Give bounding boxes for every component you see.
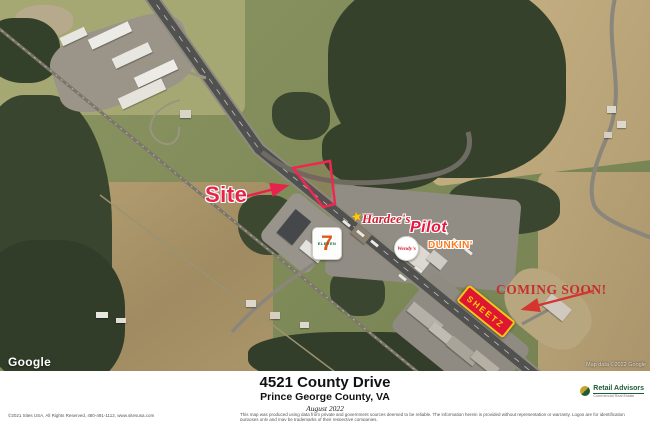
page-subtitle: Prince George County, VA bbox=[0, 391, 650, 403]
retail-advisors-logo: Retail Advisors Commercial Real Estate bbox=[580, 385, 644, 398]
disclaimer-text: This map was produced using data from pr… bbox=[240, 413, 630, 421]
flyer-page: 7 ELEVEN ★ Hardee's Pilot Wendy's DUNKIN… bbox=[0, 0, 650, 421]
annotation-layer bbox=[0, 0, 650, 371]
map-data-attribution: Map data ©2022 Google bbox=[586, 362, 646, 368]
site-arrow bbox=[247, 186, 286, 196]
brand-tagline: Commercial Real Estate bbox=[593, 394, 644, 398]
coming-soon-arrow bbox=[524, 291, 593, 309]
google-logo: Google bbox=[8, 355, 51, 369]
page-title: 4521 County Drive bbox=[0, 374, 650, 391]
copyright-text: ©2021 Sites USA, All Rights Reserved, 48… bbox=[8, 413, 154, 418]
site-parcel-outline bbox=[293, 161, 335, 207]
brand-name: Retail Advisors bbox=[593, 385, 644, 394]
retail-advisors-logo-icon bbox=[580, 386, 590, 396]
aerial-map: 7 ELEVEN ★ Hardee's Pilot Wendy's DUNKIN… bbox=[0, 0, 650, 371]
footer: 4521 County Drive Prince George County, … bbox=[0, 371, 650, 421]
